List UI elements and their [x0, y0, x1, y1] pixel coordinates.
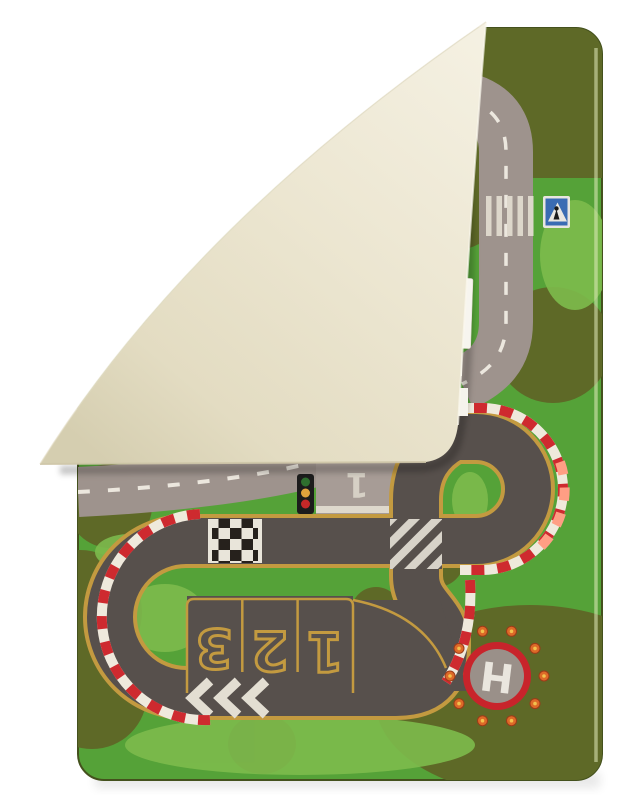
traffic-light-icon [297, 474, 314, 514]
parking-number-1: 1 [306, 620, 344, 683]
pedestrian-crossing-sign-icon [543, 196, 570, 228]
helipad-letter: H [478, 651, 517, 701]
parking-grid: 3 2 1 [187, 596, 353, 696]
diagonal-crossing-icon [390, 519, 442, 569]
rug-photo-svg: 1 [0, 0, 618, 800]
finish-line-icon [208, 519, 262, 563]
product-photo: 1 [0, 0, 618, 800]
parking-number-2: 2 [251, 619, 289, 682]
parking-number-3: 3 [195, 617, 233, 680]
